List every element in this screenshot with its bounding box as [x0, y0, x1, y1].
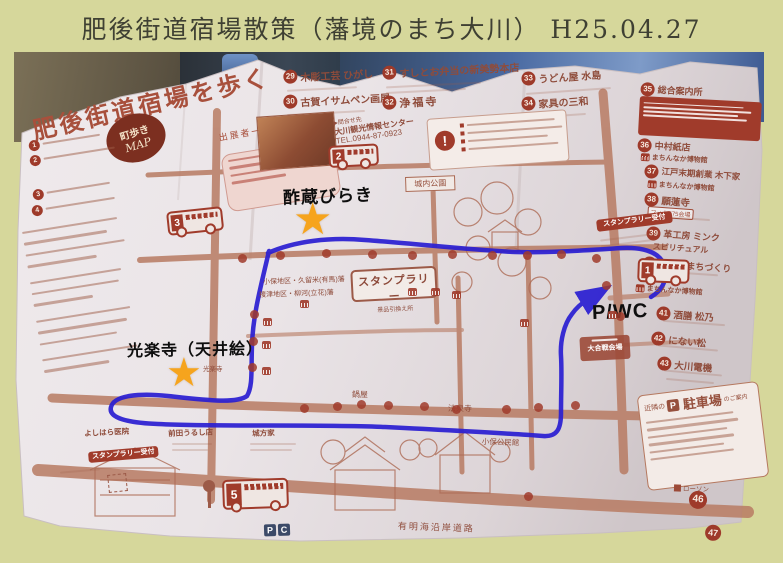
route-stop-dot: [250, 310, 259, 319]
route-stop-dot: [248, 363, 257, 372]
museum-map-icon: [520, 319, 529, 327]
museum-map-icon: [431, 288, 440, 296]
route-stop-dot: [238, 254, 247, 263]
item-number: 32: [382, 95, 397, 110]
museum-map-icon: [452, 291, 461, 299]
item-number: 34: [521, 96, 536, 111]
route-stop-dot: [368, 250, 377, 259]
lawson-icon: [674, 484, 681, 491]
item-number: 35: [640, 82, 655, 97]
parking-prefix: 近隣の: [644, 401, 666, 413]
parking-main: 駐車場: [682, 390, 723, 414]
item-label: 中村紙店: [654, 139, 691, 154]
item-number: 47: [704, 524, 722, 542]
route-stop-dot: [534, 403, 543, 412]
route-stop-dot: [249, 337, 258, 346]
korakuji-small-label: 光楽寺: [203, 366, 223, 373]
lawson-label: ローソン: [683, 483, 709, 494]
museum-map-icon: [263, 318, 272, 326]
item-label: 浄福寺: [399, 93, 439, 111]
notice-box: !: [426, 109, 569, 171]
bus-stop-5: 5: [222, 478, 289, 510]
right-item-47: 47: [704, 524, 725, 542]
item-number: 4: [31, 204, 44, 217]
museum-icon: [635, 284, 645, 293]
route-stop-dot: [357, 400, 366, 409]
item-label: 総合案内所: [657, 83, 703, 98]
battle-hall-label: 大合戦会場: [580, 341, 630, 354]
museum-map-icon: [408, 288, 417, 296]
parking-icon: P: [264, 524, 276, 536]
item-number: 33: [521, 71, 536, 86]
alert-icon: !: [434, 130, 455, 151]
item-number: 41: [656, 306, 671, 321]
item-number: 30: [283, 94, 298, 109]
item-number: 38: [644, 192, 659, 207]
photo-thumbnail: [256, 111, 338, 170]
stamp-rally-box: スタンプラリー 景品引換え所: [350, 266, 438, 302]
photo-of-map: 肥後街道宿場散策（藩境のまち大川） H25.04.27: [0, 0, 783, 563]
item-number: 36: [637, 138, 652, 153]
route-stop-dot: [616, 312, 625, 321]
museum-map-icon: [300, 300, 309, 308]
star-icon-suzo: ★: [293, 198, 332, 242]
route-stop-dot: [384, 401, 393, 410]
bus-stop-2: 2: [328, 143, 379, 168]
item-label: 革工房 ミンク: [663, 227, 720, 244]
museum-map-icon: [608, 311, 617, 319]
battle-hall-box: 大合戦会場: [579, 335, 630, 362]
bus-stop-1: 1: [637, 258, 690, 284]
bus-stop-3: 3: [166, 206, 224, 236]
museum-icon: [641, 153, 650, 161]
maeda-label: 前田うるし店: [168, 428, 213, 438]
route-stop-dot: [452, 405, 461, 414]
museum-map-icon: [262, 341, 271, 349]
route-stop-dot: [523, 251, 532, 260]
museum-map-icon: [262, 367, 271, 375]
stamp-rally-title: スタンプラリー: [352, 270, 436, 306]
route-stop-dot: [571, 401, 580, 410]
star-icon-korakuji: ★: [166, 353, 202, 393]
bus-stop-pole-top: [203, 480, 215, 492]
koho-kominkan-label: 小保公民館: [482, 438, 520, 448]
nabeya-label: 鍋屋: [352, 390, 368, 399]
route-stop-dot: [300, 404, 309, 413]
parking-suffix: のご案内: [723, 391, 748, 403]
item-number: 2: [29, 154, 42, 167]
jonai-park-box: 城内公園: [405, 175, 455, 192]
parking-toilet-chips: PC: [264, 520, 293, 539]
route-stop-dot: [276, 251, 285, 260]
route-stop-dot: [602, 281, 611, 290]
stamp-info-box: [638, 96, 762, 141]
jokata-label: 城方家: [252, 429, 275, 438]
route-stop-dot: [420, 402, 429, 411]
route-stop-dot: [557, 250, 566, 259]
route-stop-dot: [524, 492, 533, 501]
route-stop-dot: [333, 402, 342, 411]
lawson-marker: ローソン: [674, 482, 709, 493]
museum-icon: [647, 180, 657, 189]
parking-guide-box: 近隣の P 駐車場 のご案内: [637, 381, 770, 491]
route-stop-dot: [592, 254, 601, 263]
route-stop-dot: [408, 251, 417, 260]
route-stop-dot: [488, 251, 497, 260]
item-number: 3: [32, 188, 45, 201]
item-number: 37: [644, 164, 659, 179]
route-stop-dot: [502, 405, 511, 414]
item-number: 1: [28, 139, 41, 152]
stamp-square-icon: [107, 473, 128, 493]
item-number: 29: [283, 69, 298, 84]
route-stop-dot: [322, 249, 331, 258]
route-stop-dot: [448, 250, 457, 259]
item-number: 31: [382, 65, 397, 80]
parking-icon: P: [666, 398, 679, 411]
c-icon: C: [278, 524, 290, 536]
